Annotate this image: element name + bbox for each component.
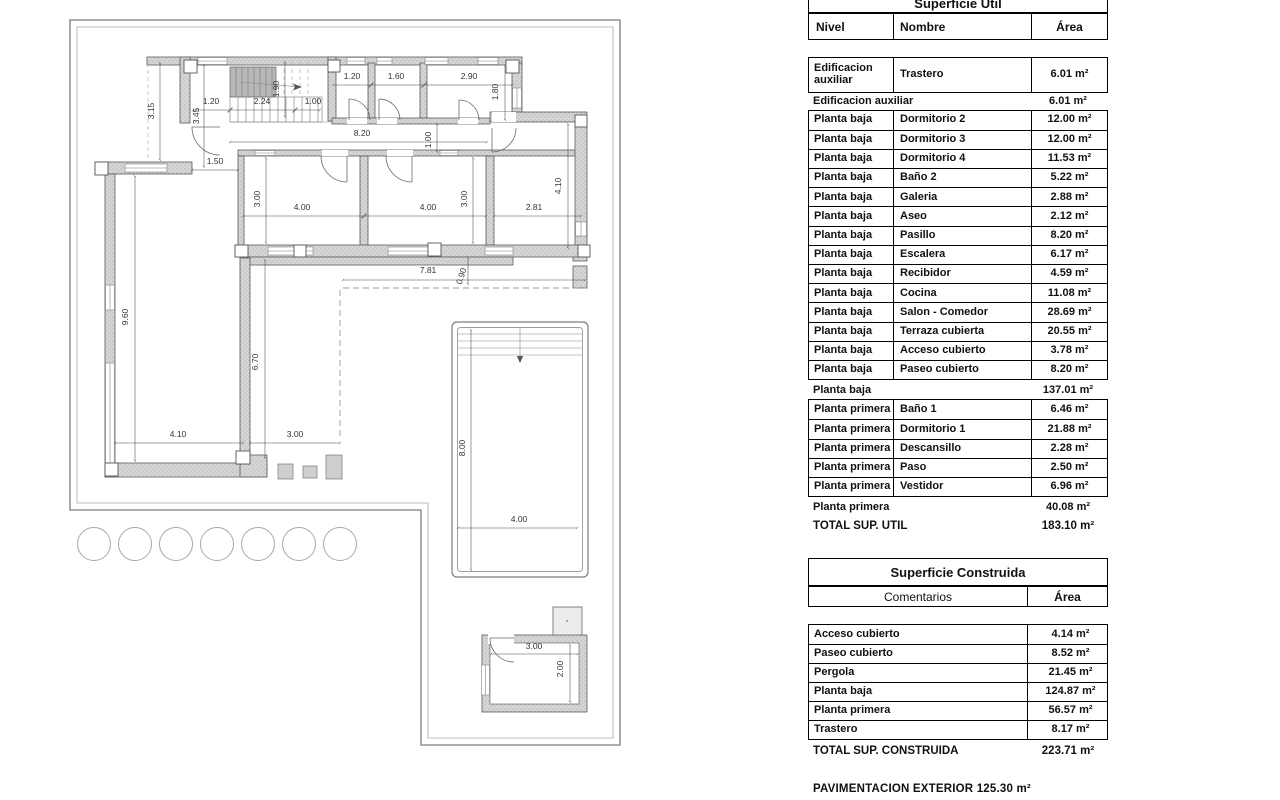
col-header-nombre: Nombre	[894, 14, 1032, 39]
table-cell: Paseo cubierto	[894, 361, 1032, 379]
table-cell: Planta primera	[809, 702, 1028, 720]
dimension-label: 8.20	[354, 128, 371, 138]
table-cell: 21.45 m²	[1028, 664, 1107, 682]
dimension-label: 1.80	[490, 83, 500, 100]
table-cell: Planta primera	[809, 459, 894, 477]
table-row: Planta bajaDormitorio 212.00 m²	[809, 111, 1107, 130]
table-cell: Galeria	[894, 188, 1032, 206]
table-cell: 2.28 m²	[1032, 440, 1107, 458]
table-cell: Edificacion auxiliar	[809, 58, 894, 92]
subtotal-value: 137.01 m²	[1028, 384, 1108, 396]
table-cell: Aseo	[894, 207, 1032, 225]
table-cell: 8.20 m²	[1032, 361, 1107, 379]
table-cell: Dormitorio 1	[894, 420, 1032, 438]
sup-util-total-row: TOTAL SUP. UTIL183.10 m²	[808, 516, 1108, 535]
table-cell: 11.53 m²	[1032, 150, 1107, 168]
area-tables-panel: Superficie Util Nivel Nombre Área Edific…	[805, 0, 1115, 800]
table-cell: 2.88 m²	[1032, 188, 1107, 206]
dimension-label: 2.81	[526, 202, 543, 212]
table-cell: Vestidor	[894, 478, 1032, 496]
col-header-comentarios: Comentarios	[809, 587, 1028, 606]
table-cell: 56.57 m²	[1028, 702, 1107, 720]
table-row: Planta bajaCocina11.08 m²	[809, 283, 1107, 302]
table-cell: Baño 1	[894, 400, 1032, 419]
dimension-label: 1.60	[388, 71, 405, 81]
area-table-group: Edificacion auxiliarTrastero6.01 m²	[808, 57, 1108, 93]
sup-construida-title: Superficie Construida	[808, 558, 1108, 586]
table-cell: Dormitorio 3	[894, 131, 1032, 149]
table-row: Edificacion auxiliarTrastero6.01 m²	[809, 58, 1107, 92]
table-row: Planta bajaAseo2.12 m²	[809, 206, 1107, 225]
dimension-label: 9.60	[120, 308, 130, 325]
dimension-label: 2.24	[254, 96, 271, 106]
table-cell: Planta primera	[809, 420, 894, 438]
subtotal-label: Planta primera	[808, 501, 1028, 513]
sup-util-header: Nivel Nombre Área	[808, 13, 1108, 40]
table-cell: Cocina	[894, 284, 1032, 302]
table-cell: Planta primera	[809, 478, 894, 496]
table-cell: 8.52 m²	[1028, 645, 1107, 663]
table-row: Pergola21.45 m²	[809, 663, 1107, 682]
table-row: Planta bajaDormitorio 312.00 m²	[809, 130, 1107, 149]
table-cell: Salon - Comedor	[894, 303, 1032, 321]
dimension-label: 1.20	[344, 71, 361, 81]
table-row: Planta primeraDormitorio 121.88 m²	[809, 419, 1107, 438]
table-cell: 8.17 m²	[1028, 721, 1107, 739]
table-cell: Planta baja	[809, 361, 894, 379]
table-cell: Planta baja	[809, 323, 894, 341]
total-label: TOTAL SUP. UTIL	[808, 520, 1028, 532]
total-value: 183.10 m²	[1028, 520, 1108, 532]
table-cell: Planta baja	[809, 188, 894, 206]
subtotal-row: Planta baja137.01 m²	[808, 380, 1108, 399]
table-row: Trastero8.17 m²	[809, 720, 1107, 739]
table-cell: 8.20 m²	[1032, 227, 1107, 245]
table-cell: Planta primera	[809, 400, 894, 419]
table-row: Planta bajaRecibidor4.59 m²	[809, 264, 1107, 283]
table-cell: Paso	[894, 459, 1032, 477]
table-cell: 28.69 m²	[1032, 303, 1107, 321]
table-row: Planta bajaGaleria2.88 m²	[809, 187, 1107, 206]
table-row: Planta bajaBaño 25.22 m²	[809, 168, 1107, 187]
table-cell: 2.12 m²	[1032, 207, 1107, 225]
dimension-label: 0.90	[454, 266, 469, 285]
table-cell: 6.01 m²	[1032, 58, 1107, 92]
table-cell: Planta baja	[809, 265, 894, 283]
table-cell: Planta primera	[809, 440, 894, 458]
col-header-area: Área	[1028, 587, 1107, 606]
dimension-label: 6.70	[250, 353, 260, 370]
table-cell: 21.88 m²	[1032, 420, 1107, 438]
table-row: Planta bajaAcceso cubierto3.78 m²	[809, 341, 1107, 360]
table-cell: Planta baja	[809, 207, 894, 225]
dimension-label: 7.81	[420, 265, 437, 275]
col-header-nivel: Nivel	[809, 14, 894, 39]
table-cell: Planta baja	[809, 284, 894, 302]
table-cell: Planta baja	[809, 303, 894, 321]
table-cell: 124.87 m²	[1028, 683, 1107, 701]
table-row: Planta primeraDescansillo2.28 m²	[809, 439, 1107, 458]
table-cell: Recibidor	[894, 265, 1032, 283]
dimension-label: 4.10	[170, 429, 187, 439]
table-cell: Planta baja	[809, 342, 894, 360]
dimension-label: 1.90	[271, 80, 281, 97]
table-row: Paseo cubierto8.52 m²	[809, 644, 1107, 663]
table-cell: Trastero	[894, 58, 1032, 92]
dimension-label: 3.15	[146, 102, 156, 119]
dimension-label: 4.00	[420, 202, 437, 212]
table-cell: 3.78 m²	[1032, 342, 1107, 360]
table-cell: Terraza cubierta	[894, 323, 1032, 341]
total-label: TOTAL SUP. CONSTRUIDA	[808, 745, 1028, 757]
dimension-label: 3.45	[191, 107, 201, 124]
subtotal-label: Edificacion auxiliar	[808, 95, 1028, 107]
table-cell: Acceso cubierto	[894, 342, 1032, 360]
table-cell: Dormitorio 4	[894, 150, 1032, 168]
table-cell: 5.22 m²	[1032, 169, 1107, 187]
table-cell: Pergola	[809, 664, 1028, 682]
table-cell: 12.00 m²	[1032, 131, 1107, 149]
sup-construida-body: Acceso cubierto4.14 m²Paseo cubierto8.52…	[808, 624, 1108, 740]
table-row: Planta primeraPaso2.50 m²	[809, 458, 1107, 477]
sup-construida-header: Comentarios Área	[808, 586, 1108, 607]
table-row: Planta bajaPasillo8.20 m²	[809, 226, 1107, 245]
subtotal-label: Planta baja	[808, 384, 1028, 396]
subtotal-value: 40.08 m²	[1028, 501, 1108, 513]
table-cell: Descansillo	[894, 440, 1032, 458]
dimension-label: 1.00	[305, 96, 322, 106]
staircase	[230, 62, 332, 122]
subtotal-value: 6.01 m²	[1028, 95, 1108, 107]
dimension-label: 1.00	[423, 131, 433, 148]
table-cell: Dormitorio 2	[894, 111, 1032, 130]
stepping-stones	[278, 455, 342, 479]
area-table-group: Planta primeraBaño 16.46 m²Planta primer…	[808, 399, 1108, 497]
dimension-label: 2.00	[555, 660, 565, 677]
table-cell: Planta baja	[809, 131, 894, 149]
dimension-label: 1.50	[207, 156, 224, 166]
total-value: 223.71 m²	[1028, 745, 1108, 757]
table-row: Planta primeraVestidor6.96 m²	[809, 477, 1107, 496]
table-cell: 4.59 m²	[1032, 265, 1107, 283]
table-row: Planta bajaSalon - Comedor28.69 m²	[809, 302, 1107, 321]
swimming-pool	[452, 322, 588, 577]
table-row: Planta bajaEscalera6.17 m²	[809, 245, 1107, 264]
floor-plan-drawing: 3.151.202.241.003.451.901.201.602.901.80…	[0, 0, 800, 800]
tree-row	[78, 528, 357, 561]
dimension-label: 8.00	[457, 439, 467, 456]
sup-construida-total-row: TOTAL SUP. CONSTRUIDA 223.71 m²	[808, 741, 1108, 760]
pavimentacion-note: PAVIMENTACION EXTERIOR 125.30 m²	[813, 783, 1031, 795]
table-cell: Acceso cubierto	[809, 625, 1028, 644]
table-cell: Planta baja	[809, 246, 894, 264]
table-row: Planta bajaDormitorio 411.53 m²	[809, 149, 1107, 168]
dimension-label: 4.10	[553, 177, 563, 194]
floor-plan-sheet: 3.151.202.241.003.451.901.201.602.901.80…	[0, 0, 1280, 800]
table-row: Acceso cubierto4.14 m²	[809, 625, 1107, 644]
table-cell: 12.00 m²	[1032, 111, 1107, 130]
subtotal-row: Planta primera40.08 m²	[808, 497, 1108, 516]
dimension-label: 3.00	[526, 641, 543, 651]
table-cell: 6.96 m²	[1032, 478, 1107, 496]
table-row: Planta primera56.57 m²	[809, 701, 1107, 720]
dimension-label: 4.00	[294, 202, 311, 212]
table-cell: 20.55 m²	[1032, 323, 1107, 341]
area-table-group: Planta bajaDormitorio 212.00 m²Planta ba…	[808, 110, 1108, 381]
table-cell: Planta baja	[809, 683, 1028, 701]
table-cell: 2.50 m²	[1032, 459, 1107, 477]
sup-util-body: Edificacion auxiliarTrastero6.01 m²Edifi…	[808, 57, 1108, 535]
table-row: Planta baja124.87 m²	[809, 682, 1107, 701]
table-cell: Baño 2	[894, 169, 1032, 187]
sup-util-title: Superficie Util	[808, 0, 1108, 13]
auxiliary-building	[482, 607, 588, 712]
dimension-label: 3.00	[459, 190, 469, 207]
table-cell: Trastero	[809, 721, 1028, 739]
table-row: Planta bajaTerraza cubierta20.55 m²	[809, 322, 1107, 341]
table-cell: Planta baja	[809, 227, 894, 245]
dimension-label: 4.00	[511, 514, 528, 524]
table-cell: 6.17 m²	[1032, 246, 1107, 264]
table-cell: 4.14 m²	[1028, 625, 1107, 644]
table-cell: Planta baja	[809, 111, 894, 130]
table-cell: 11.08 m²	[1032, 284, 1107, 302]
table-cell: Paseo cubierto	[809, 645, 1028, 663]
dimension-label: 3.00	[287, 429, 304, 439]
table-cell: Planta baja	[809, 150, 894, 168]
table-cell: Pasillo	[894, 227, 1032, 245]
dimension-label: 3.00	[252, 190, 262, 207]
table-cell: Planta baja	[809, 169, 894, 187]
table-cell: 6.46 m²	[1032, 400, 1107, 419]
subtotal-row: Edificacion auxiliar6.01 m²	[808, 93, 1108, 110]
col-header-area: Área	[1032, 14, 1107, 39]
dimension-label: 1.20	[203, 96, 220, 106]
table-row: Planta bajaPaseo cubierto8.20 m²	[809, 360, 1107, 379]
table-row: Planta primeraBaño 16.46 m²	[809, 400, 1107, 419]
table-cell: Escalera	[894, 246, 1032, 264]
dimension-label: 2.90	[461, 71, 478, 81]
